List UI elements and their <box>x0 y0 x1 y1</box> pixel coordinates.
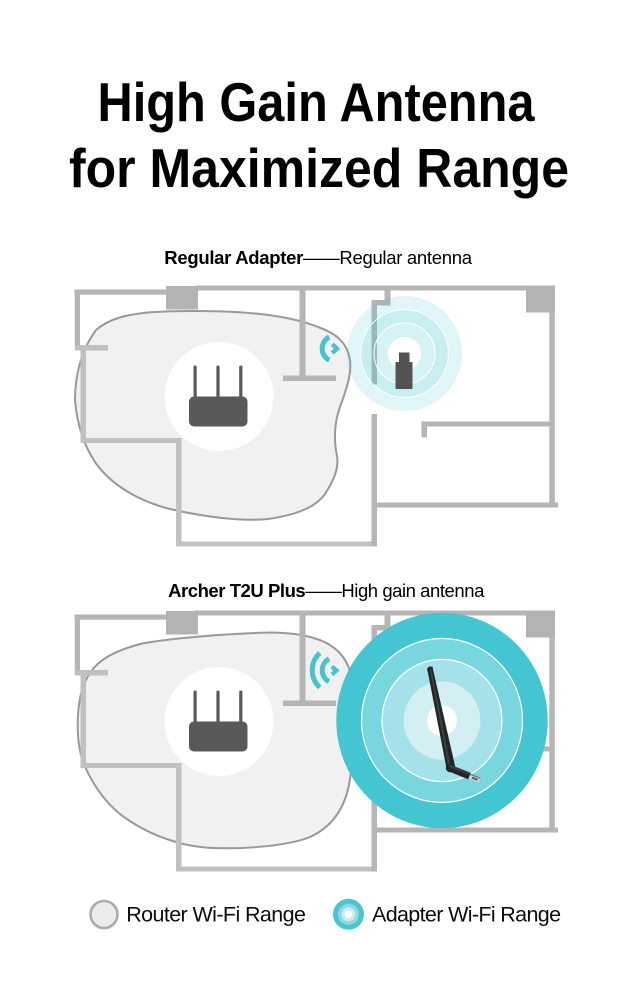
svg-text:Archer T2U Plus——High gain ant: Archer T2U Plus——High gain antenna <box>168 580 485 601</box>
svg-text:High Gain Antenna: High Gain Antenna <box>98 71 535 133</box>
svg-text:for Maximized Range: for Maximized Range <box>69 137 569 199</box>
svg-text:Regular Adapter——Regular anten: Regular Adapter——Regular antenna <box>164 247 472 268</box>
svg-text:Adapter Wi-Fi Range: Adapter Wi-Fi Range <box>372 903 560 927</box>
svg-text:Router Wi-Fi Range: Router Wi-Fi Range <box>126 903 305 927</box>
